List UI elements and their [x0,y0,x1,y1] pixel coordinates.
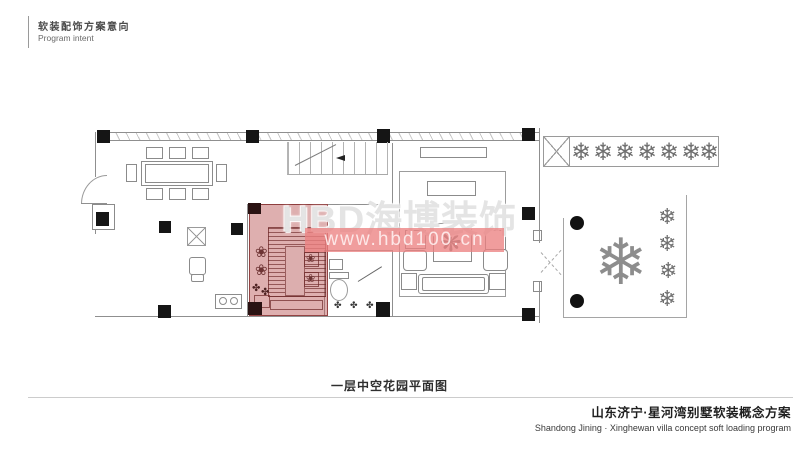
atrium-bench [270,300,323,310]
column [376,302,390,317]
door-jamb [533,281,542,292]
garden-door-swing [541,252,562,275]
watermark-bar: www.hbd100.cn [305,228,504,252]
tree-icon: ❄ [658,288,676,310]
tree-icon: ❄ [659,141,679,165]
dining-chair [146,188,163,200]
dining-chair [126,164,137,182]
courtyard-line-right [686,195,687,318]
column [522,308,535,321]
tree-icon: ❄ [571,141,591,165]
corner-table [489,273,506,290]
courtyard-line-left [563,218,564,318]
toilet [330,279,348,301]
tree-icon: ❄ [593,141,613,165]
dining-chair [216,164,227,182]
cooktop-burner [230,297,238,305]
shrub-icon: ✤ [350,301,358,310]
wall-left-lower [95,230,96,234]
dining-chair [192,147,209,159]
big-tree-icon: ❄ [594,230,648,294]
atrium-corner-column [248,302,262,315]
plant-icon: ❀ [306,274,315,285]
tree-icon: ❄ [637,141,657,165]
dining-chair [169,147,186,159]
project-title-cn: 山东济宁·星河湾别墅软装概念方案 [535,402,791,421]
plant-icon: ❀ [255,263,268,278]
atrium-deck-walkway [285,246,305,296]
column [158,305,171,318]
bathroom-door-leaf [358,266,382,282]
armchair-single [189,257,206,275]
planter-xbox [543,136,570,167]
plant-icon: ❀ [306,254,315,265]
wall-top [100,132,540,141]
corner-table [401,273,417,290]
garden-column-round [570,216,584,230]
courtyard-line-bottom [563,317,687,318]
plant-icon: ❀ [255,245,268,260]
page-subtitle: Program intent [38,33,94,43]
header-divider [28,16,29,48]
tree-icon: ❄ [615,141,635,165]
shrub-icon: ✤ [366,301,374,310]
garden-column-round [570,294,584,308]
column [522,128,535,141]
sofa-seat [422,277,485,291]
armchair-single-seat [191,274,204,282]
atrium-corner-column [248,203,261,214]
dining-chair [169,188,186,200]
tree-icon: ❄ [659,260,677,282]
page-title: 软装配饰方案意向 [38,18,130,33]
tree-icon: ❄ [658,233,676,255]
footer: 山东济宁·星河湾别墅软装概念方案 Shandong Jining · Xingh… [535,402,791,433]
column [522,207,535,220]
column [159,221,171,233]
drawing-caption: 一层中空花园平面图 [331,377,448,394]
watermark-url: www.hbd100.cn [324,229,484,251]
tree-icon: ❄ [658,206,676,228]
wall-interior-vertical [247,204,248,316]
cooktop-burner [219,297,227,305]
footer-divider [28,397,793,398]
staircase-arrow [336,155,345,161]
wall-hall-right-lower [392,250,393,316]
presentation-page: 软装配饰方案意向 Program intent [0,0,800,450]
column [231,223,243,235]
tree-icon: ❄ [699,141,719,165]
bathroom-sink [329,259,343,270]
armchair [403,250,427,271]
column [377,129,390,143]
tv-console [420,147,487,158]
column [246,130,259,143]
garden-door-swing [541,250,562,273]
dining-table-inner [145,164,209,183]
shrub-icon: ✤ [261,288,269,298]
wall-left-upper [95,132,96,177]
wall-right-upper [539,128,540,243]
shaft-xbox [187,227,206,246]
entry-door-arc [81,175,107,204]
column [97,130,110,143]
shrub-icon: ✤ [334,301,342,310]
dining-chair [192,188,209,200]
dining-chair [146,147,163,159]
armchair [483,249,508,271]
project-title-en: Shandong Jining · Xinghewan villa concep… [535,423,791,433]
column [96,212,109,226]
door-jamb [533,230,542,241]
toilet-tank [329,272,349,279]
shrub-icon: ✤ [252,284,260,294]
